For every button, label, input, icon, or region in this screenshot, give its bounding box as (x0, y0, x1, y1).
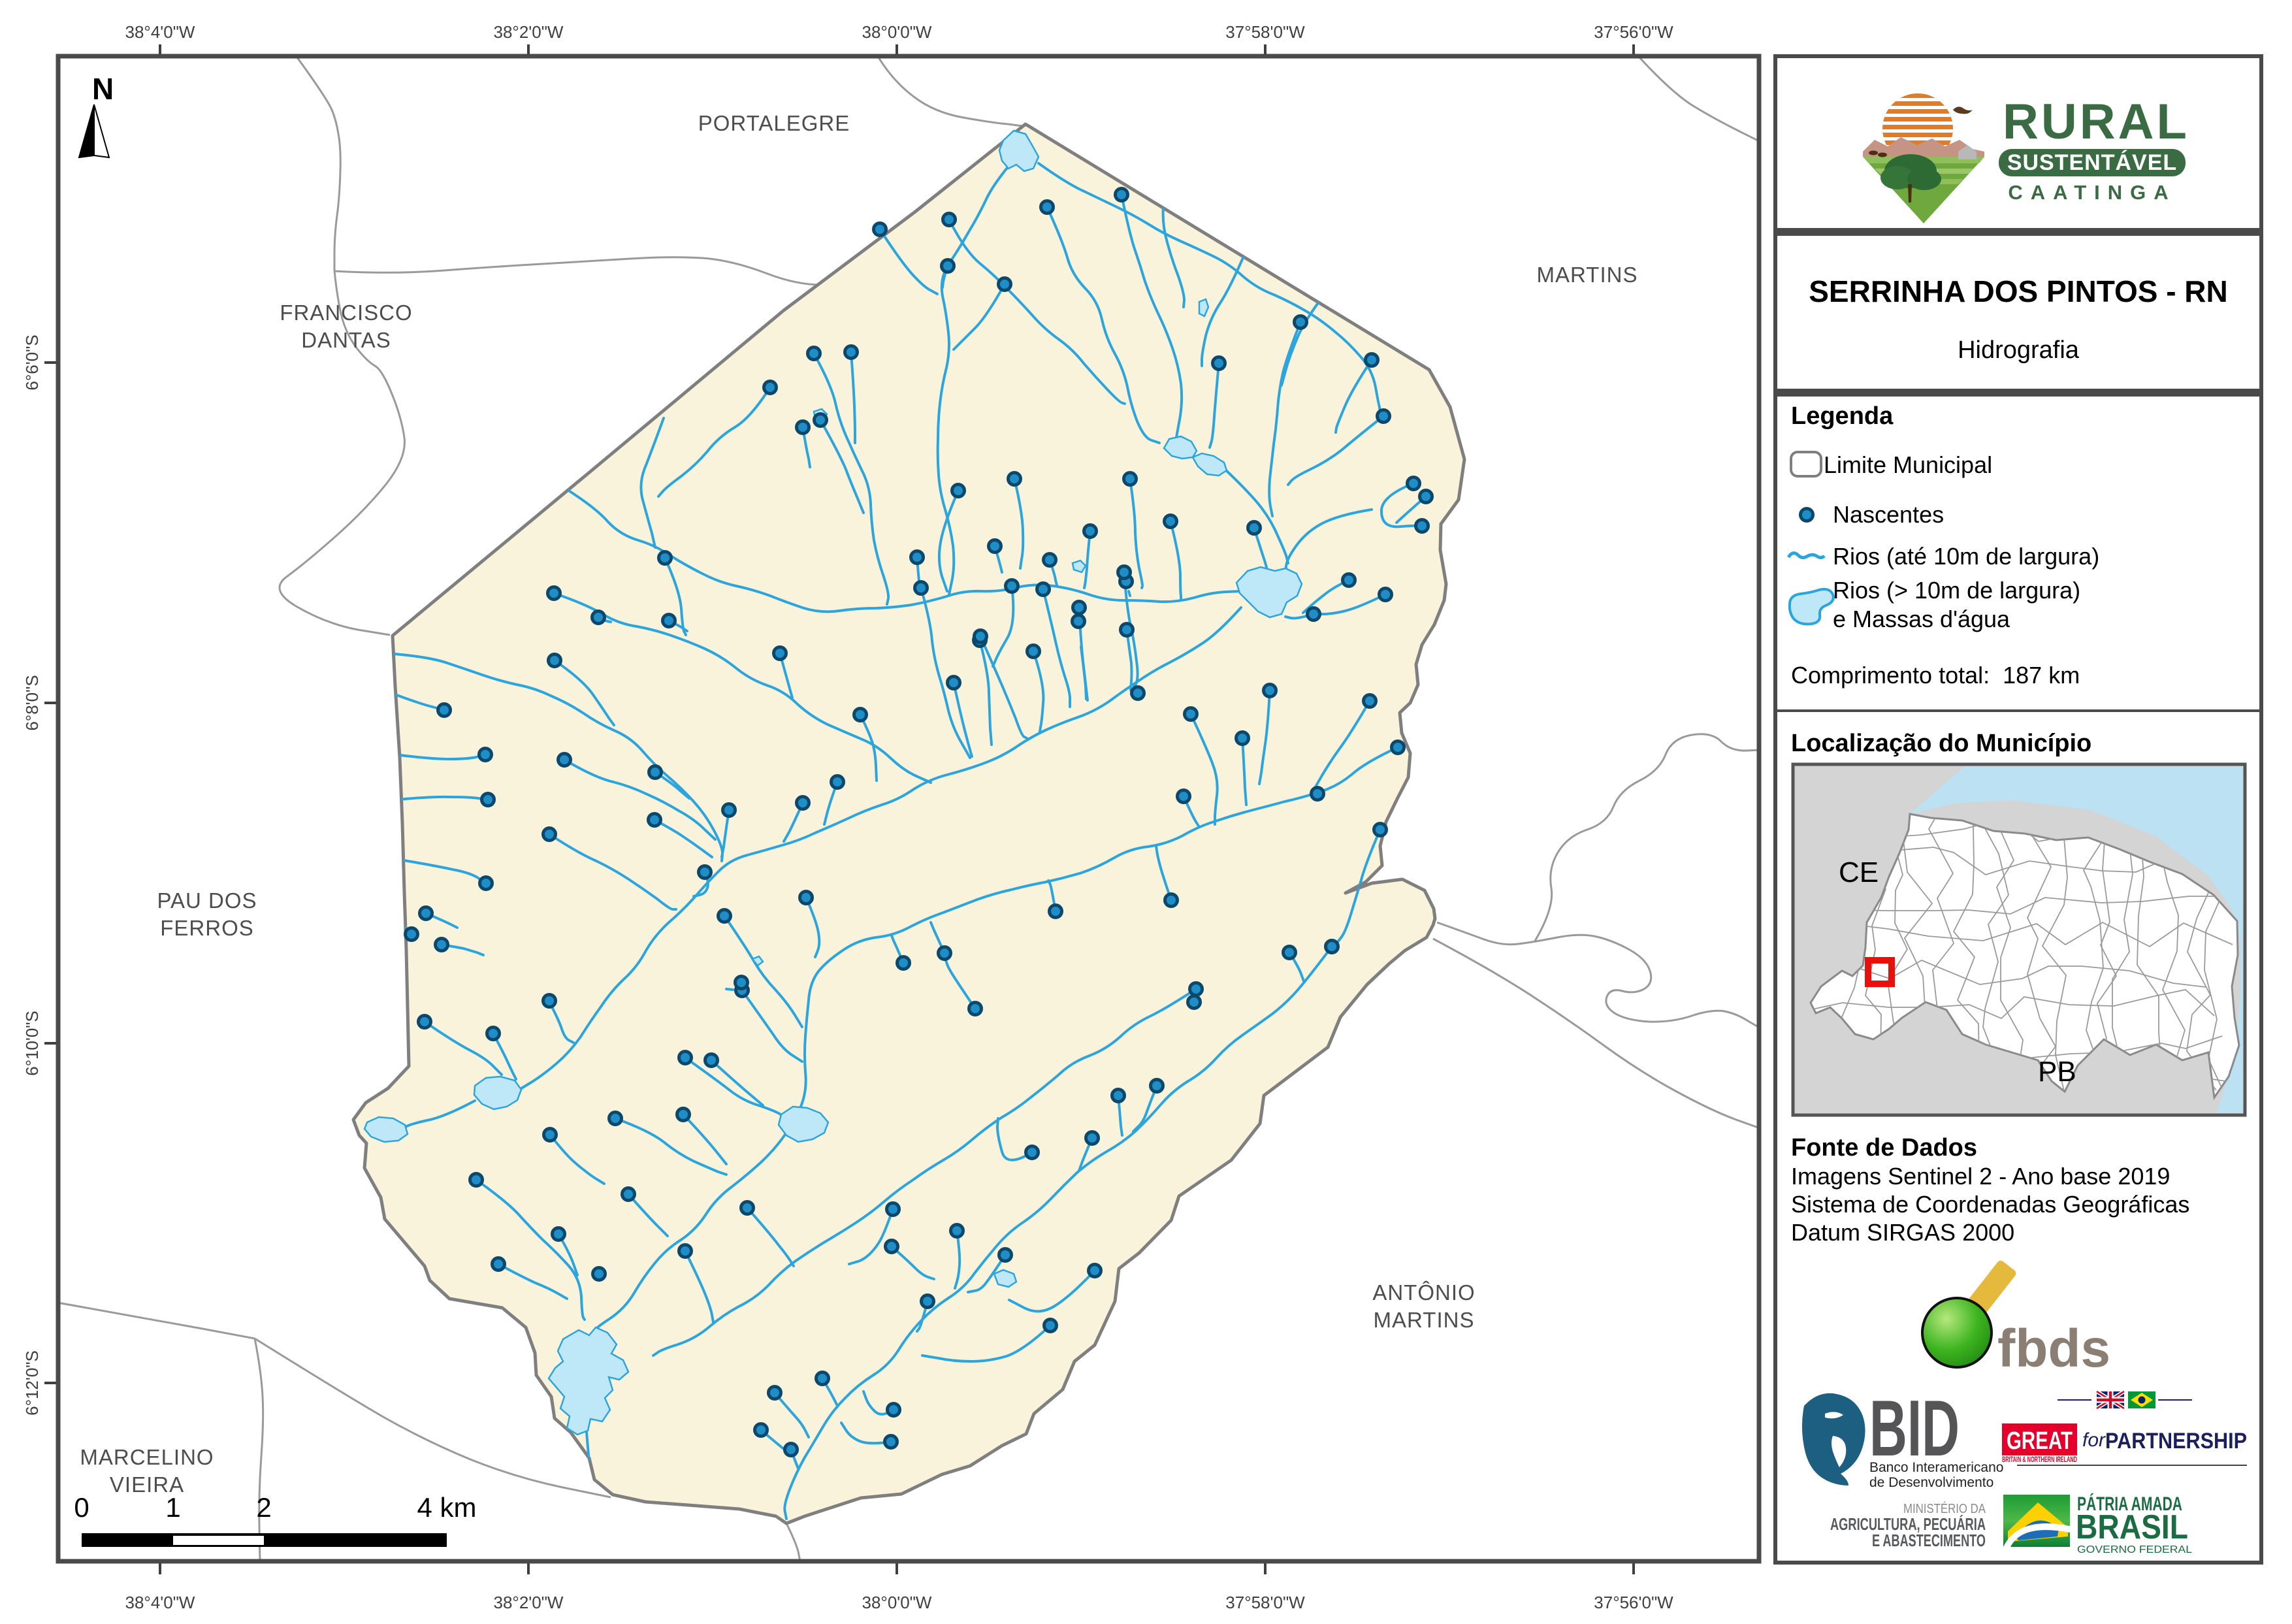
svg-text:Fonte de Dados: Fonte de Dados (1791, 1134, 1977, 1161)
svg-text:CE: CE (1839, 856, 1879, 888)
svg-text:Rios (> 10m de largura): Rios (> 10m de largura) (1833, 577, 2080, 604)
svg-text:GOVERNO FEDERAL: GOVERNO FEDERAL (2077, 1544, 2192, 1555)
svg-text:SERRINHA DOS PINTOS - RN: SERRINHA DOS PINTOS - RN (1809, 274, 2228, 308)
svg-text:38°2'0"W: 38°2'0"W (494, 22, 564, 42)
svg-text:FRANCISCO: FRANCISCO (280, 300, 412, 325)
svg-text:N: N (92, 72, 114, 106)
svg-text:37°56'0"W: 37°56'0"W (1594, 1593, 1673, 1612)
svg-text:ANTÔNIO: ANTÔNIO (1372, 1280, 1475, 1305)
svg-text:BRITAIN & NORTHERN IRELAND: BRITAIN & NORTHERN IRELAND (2002, 1455, 2077, 1464)
svg-text:BRASIL: BRASIL (2076, 1508, 2188, 1546)
svg-text:Comprimento total: 187 km: Comprimento total: 187 km (1791, 662, 2080, 689)
svg-text:0: 0 (74, 1492, 89, 1523)
svg-text:GREAT: GREAT (2007, 1427, 2073, 1455)
svg-text:Rios (até 10m de largura): Rios (até 10m de largura) (1833, 543, 2099, 570)
svg-text:BID: BID (1869, 1384, 1960, 1472)
svg-text:Hidrografia: Hidrografia (1958, 336, 2080, 364)
svg-text:6°12'0"S: 6°12'0"S (22, 1350, 42, 1416)
svg-text:for: for (2082, 1429, 2106, 1451)
svg-text:E ABASTECIMENTO: E ABASTECIMENTO (1872, 1531, 1986, 1550)
svg-text:de Desenvolvimento: de Desenvolvimento (1869, 1475, 1993, 1490)
svg-text:Banco Interamericano: Banco Interamericano (1869, 1460, 2003, 1475)
svg-text:MARTINS: MARTINS (1374, 1308, 1475, 1332)
svg-text:Datum SIRGAS 2000: Datum SIRGAS 2000 (1791, 1219, 2014, 1246)
svg-text:SUSTENTÁVEL: SUSTENTÁVEL (2007, 150, 2177, 175)
svg-text:38°4'0"W: 38°4'0"W (125, 1593, 195, 1612)
svg-text:fbds: fbds (1997, 1319, 2110, 1378)
svg-text:Localização do Município: Localização do Município (1791, 730, 2091, 757)
svg-text:38°4'0"W: 38°4'0"W (125, 22, 195, 42)
svg-text:Imagens Sentinel 2 - Ano base: Imagens Sentinel 2 - Ano base 2019 (1791, 1163, 2170, 1190)
svg-text:e Massas d'água: e Massas d'água (1833, 606, 2010, 632)
svg-text:DANTAS: DANTAS (301, 328, 391, 352)
svg-text:1: 1 (165, 1492, 180, 1523)
svg-text:6°10'0"S: 6°10'0"S (22, 1011, 42, 1076)
svg-text:PAU DOS: PAU DOS (157, 888, 257, 913)
svg-text:CAATINGA: CAATINGA (2008, 181, 2176, 204)
svg-text:PB: PB (2038, 1056, 2076, 1088)
svg-text:Legenda: Legenda (1791, 402, 1894, 430)
svg-text:38°0'0"W: 38°0'0"W (862, 1593, 932, 1612)
svg-text:MARCELINO: MARCELINO (80, 1445, 214, 1469)
svg-text:MARTINS: MARTINS (1537, 263, 1638, 287)
svg-text:2: 2 (256, 1492, 271, 1523)
svg-text:RURAL: RURAL (2003, 94, 2189, 150)
svg-text:37°56'0"W: 37°56'0"W (1594, 22, 1673, 42)
svg-text:38°2'0"W: 38°2'0"W (494, 1593, 564, 1612)
svg-text:Sistema de Coordenadas Geográf: Sistema de Coordenadas Geográficas (1791, 1191, 2189, 1218)
svg-text:37°58'0"W: 37°58'0"W (1225, 1593, 1305, 1612)
svg-text:Limite Municipal: Limite Municipal (1824, 451, 1992, 478)
svg-text:FERROS: FERROS (160, 916, 254, 940)
svg-text:6°8'0"S: 6°8'0"S (22, 675, 42, 730)
svg-text:6°6'0"S: 6°6'0"S (22, 334, 42, 390)
svg-text:4 km: 4 km (417, 1492, 476, 1523)
svg-text:38°0'0"W: 38°0'0"W (862, 22, 932, 42)
svg-text:PORTALEGRE: PORTALEGRE (698, 111, 850, 135)
svg-text:PARTNERSHIP: PARTNERSHIP (2105, 1429, 2247, 1453)
svg-text:37°58'0"W: 37°58'0"W (1225, 22, 1305, 42)
svg-text:Nascentes: Nascentes (1833, 501, 1944, 528)
